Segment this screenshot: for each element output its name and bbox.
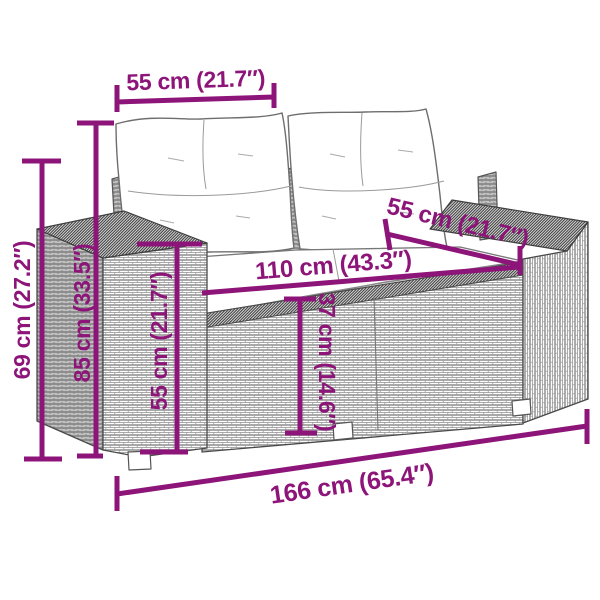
back-cushion-right xyxy=(288,109,447,251)
sofa-illustration xyxy=(37,109,588,470)
left-armrest xyxy=(37,211,207,457)
dim-label-armrest-height: 55 cm (21.7″) xyxy=(146,272,172,411)
dimension-diagram-canvas: 55 cm (21.7″) 69 cm (27.2″) 85 cm (33.5″… xyxy=(0,0,600,600)
dim-label-seat-height: 37 cm (14.6″) xyxy=(314,293,340,432)
dim-label-backrest-height: 85 cm (33.5″) xyxy=(69,244,95,383)
foot xyxy=(512,399,531,416)
product-dimension-diagram: 55 cm (21.7″) 69 cm (27.2″) 85 cm (33.5″… xyxy=(0,0,600,600)
dim-label-backrest-width: 55 cm (21.7″) xyxy=(126,65,266,96)
dim-label-total-height: 69 cm (27.2″) xyxy=(9,241,35,380)
